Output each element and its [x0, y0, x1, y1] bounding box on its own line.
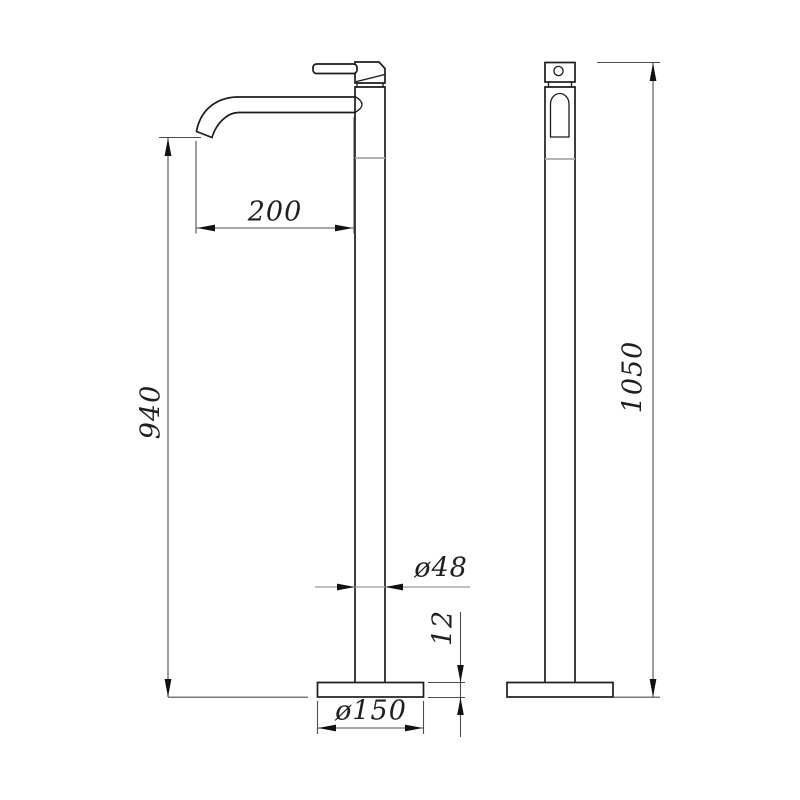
- dim-12-arrow-bottom: [457, 698, 464, 716]
- lever-handle: [313, 64, 357, 74]
- dim-48-arrow-right: [385, 584, 403, 591]
- side-base-plate: [507, 683, 613, 698]
- spout-column-junction-arc: [355, 97, 362, 113]
- dim-48-arrow-left: [337, 584, 355, 591]
- drawing-linework: [0, 0, 800, 800]
- dim-200-arrow-right: [335, 225, 353, 232]
- dimension-label-spout-reach: 200: [248, 197, 303, 228]
- dim-150-arrow-left: [318, 725, 336, 732]
- technical-drawing-canvas: 200 940 1050 ø48 12 ø150: [0, 0, 800, 800]
- dim-940-arrow-bottom: [165, 679, 172, 697]
- dim-940-arrow-top: [165, 138, 172, 156]
- dimension-linework: [159, 63, 660, 738]
- dim-150-arrow-right: [405, 725, 423, 732]
- dim-column-diameter: [315, 584, 470, 591]
- dim-1050-arrow-top: [650, 63, 657, 81]
- side-view: [507, 63, 613, 698]
- spout-outline: [197, 97, 355, 138]
- dim-200-arrow-left: [197, 225, 215, 232]
- dimension-label-spout-outlet-height: 940: [136, 385, 167, 440]
- dimension-label-base-thickness: 12: [428, 610, 459, 646]
- dim-1050-arrow-bottom: [650, 679, 657, 697]
- spout-side-silhouette: [551, 94, 570, 138]
- dimension-label-base-diameter: ø150: [335, 696, 407, 727]
- side-head-block: [545, 63, 575, 83]
- dimension-label-overall-height: 1050: [618, 341, 649, 414]
- front-view: [197, 62, 424, 697]
- front-head-block: [355, 62, 385, 83]
- dim-12-arrow-top: [457, 665, 464, 683]
- dimension-label-column-diameter: ø48: [414, 553, 468, 584]
